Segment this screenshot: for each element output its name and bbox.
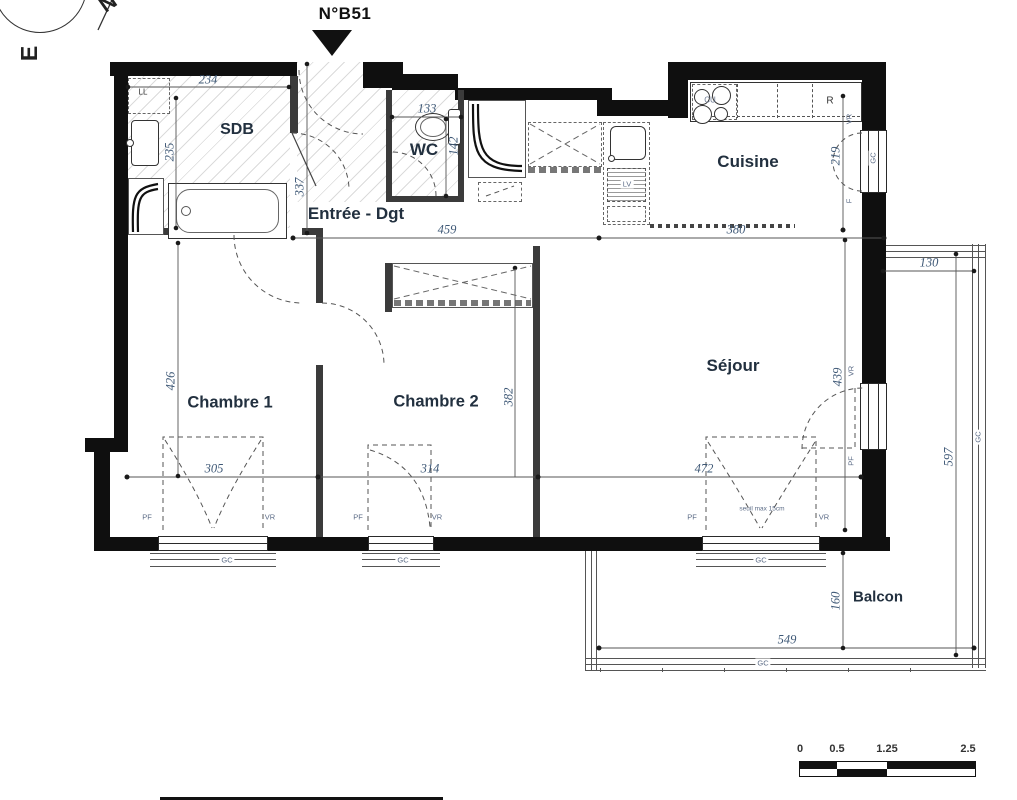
dim-label-235: 235: [163, 143, 178, 162]
dim-label-314: 314: [421, 462, 440, 477]
bathtub-drain: [181, 206, 191, 216]
kitchen-sink: [610, 126, 646, 160]
window-label-vr: VR: [432, 513, 442, 522]
partition-ch1-ch2: [316, 235, 323, 303]
window-chambre2: [368, 536, 434, 551]
entry-wardrobe: [528, 122, 602, 167]
room-label-balcon: Balcon: [853, 589, 903, 606]
wall-segment: [94, 452, 110, 537]
window-sejour-south: [702, 536, 820, 551]
window-label-vr: VR: [265, 513, 275, 522]
kitchen-cabinet-low: [607, 206, 646, 222]
shower-unit: [128, 178, 164, 235]
dim-label-380: 380: [727, 223, 746, 238]
wall-segment: [668, 62, 688, 118]
wall-segment: [862, 450, 886, 537]
wall-segment: [597, 100, 672, 116]
window-label-vr: VR: [845, 114, 854, 124]
window-label-vr: VR: [819, 513, 829, 522]
dishwasher-label: LV: [621, 180, 634, 189]
wall-segment: [114, 62, 128, 452]
room-label-wc: WC: [410, 140, 438, 160]
dim-label-439: 439: [831, 368, 846, 387]
dim-label-160: 160: [829, 592, 844, 611]
window-label-gc: GC: [753, 556, 768, 565]
window-label-pf: PF: [847, 456, 856, 466]
wall-segment: [862, 193, 886, 383]
dim-label-337: 337: [293, 178, 308, 197]
unit-locator-icon: [312, 30, 352, 56]
entry-closet: [468, 100, 526, 178]
kitchen-faucet: [608, 155, 615, 162]
room-label-cuisine: Cuisine: [717, 152, 778, 172]
wall-segment: [668, 62, 886, 80]
kitchen-counter-divider: [777, 84, 778, 118]
room-label-chambre1: Chambre 1: [187, 394, 272, 413]
scalebar-tick-0: 0: [797, 743, 803, 755]
partition-wc-bottom: [386, 196, 464, 202]
dim-label-305: 305: [205, 462, 224, 477]
partition-wardrobe-stub: [385, 263, 392, 312]
partition-door-stub: [302, 228, 323, 235]
window-label-pf: PF: [353, 513, 363, 522]
partition-wc-left: [386, 90, 392, 196]
wall-segment: [392, 74, 458, 90]
dim-label-382: 382: [502, 388, 517, 407]
compass-north-label: N: [94, 0, 122, 18]
washing-machine-label: LL: [139, 88, 148, 97]
room-label-entree: Entrée - Dgt: [308, 204, 404, 224]
wall-segment: [862, 80, 886, 130]
dim-label-133: 133: [418, 102, 437, 117]
scalebar-tick-125: 1.25: [876, 743, 897, 755]
dim-label-459: 459: [438, 223, 457, 238]
partition-ch1-ch2: [316, 365, 323, 537]
bathtub-inner: [176, 189, 279, 233]
dim-label-130: 130: [920, 256, 939, 271]
room-label-chambre2: Chambre 2: [393, 393, 478, 412]
balcony-rail-label-gc: GC: [755, 659, 770, 668]
window-label-pf: PF: [142, 513, 152, 522]
balcony-rail-left: [585, 551, 597, 671]
balcony-rail-right: [972, 244, 986, 668]
room-label-sdb: SDB: [220, 121, 254, 139]
page-title: N°B51: [300, 4, 390, 24]
wall-segment: [820, 537, 890, 551]
partition-sdb-right: [290, 76, 298, 133]
guardrail-chambre1: [150, 553, 276, 567]
window-label-vr: VR: [847, 366, 856, 376]
scalebar-tick-25: 2.5: [960, 743, 975, 755]
scalebar: [799, 761, 976, 777]
toilet-bowl-inner: [420, 117, 446, 137]
scalebar-tick-05: 0.5: [829, 743, 844, 755]
window-label-pf: PF: [687, 513, 697, 522]
wall-segment: [455, 88, 612, 100]
entry-wardrobe-rail: [528, 167, 602, 173]
wall-segment: [268, 537, 368, 551]
window-label-gc: GC: [869, 150, 878, 165]
washing-machine-slot: [128, 78, 170, 114]
cooktop-burner: [714, 107, 728, 121]
kitchen-floor-limit: [650, 224, 795, 228]
dim-label-142: 142: [447, 137, 462, 156]
kitchen-counter-divider: [737, 84, 738, 118]
wall-segment: [94, 537, 158, 551]
compass-circle: [0, 0, 87, 33]
threshold-note: seuil max 15cm: [739, 506, 784, 513]
sdb-sink: [131, 120, 159, 166]
window-label-gc: GC: [219, 556, 234, 565]
ch2-wardrobe-rail: [394, 300, 531, 306]
balcony-rail-label-gc: GC: [974, 429, 983, 444]
dim-label-472: 472: [695, 462, 714, 477]
window-label-gc: GC: [395, 556, 410, 565]
dim-label-234: 234: [199, 73, 218, 88]
entry-small-cabinet: [478, 182, 522, 202]
cooktop-label: CU: [704, 96, 716, 105]
wall-segment: [85, 438, 128, 452]
room-label-sejour: Séjour: [707, 356, 760, 376]
compass-east-label: E: [16, 46, 43, 61]
sdb-faucet: [126, 139, 134, 147]
window-label-f: F: [845, 199, 854, 204]
fridge-label: R: [826, 96, 833, 107]
partition-ch2-sejour: [533, 246, 540, 537]
balcony-rail-ticks: [600, 668, 970, 672]
dim-label-426: 426: [164, 372, 179, 391]
wall-segment: [434, 537, 702, 551]
dim-label-597: 597: [942, 448, 957, 467]
floor-plan-canvas: N E N°B51 SDB WC Entrée - Dgt Cuisine Ch…: [0, 0, 1017, 800]
window-chambre1: [158, 536, 268, 551]
dim-label-219: 219: [829, 147, 844, 166]
window-sejour-east: [860, 383, 887, 450]
dim-label-549: 549: [778, 633, 797, 648]
cooktop-burner: [693, 105, 712, 124]
kitchen-counter-divider: [812, 84, 813, 118]
